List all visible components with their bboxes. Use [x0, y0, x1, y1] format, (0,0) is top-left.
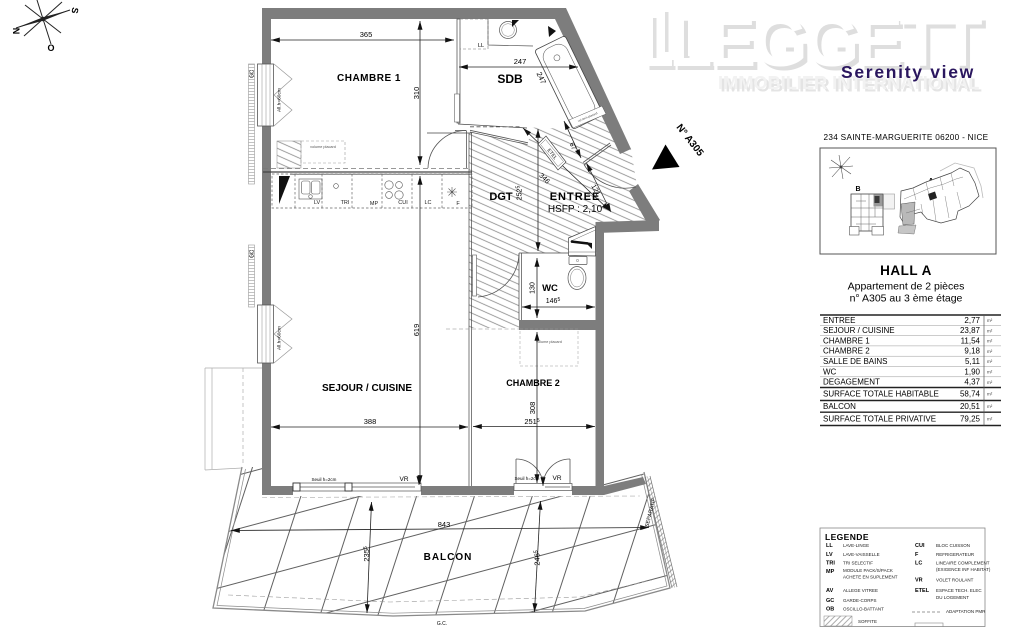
svg-text:ESPACE TECH. ELEC: ESPACE TECH. ELEC	[936, 588, 982, 593]
svg-text:LV: LV	[314, 200, 321, 206]
svg-text:CHAMBRE 2: CHAMBRE 2	[506, 378, 560, 388]
svg-text:MODULE PACK/S/PACK: MODULE PACK/S/PACK	[843, 568, 893, 573]
svg-text:234 SAINTE-MARGUERITE 06200 -: 234 SAINTE-MARGUERITE 06200 - NICE	[824, 133, 989, 142]
svg-text:308: 308	[528, 402, 537, 415]
svg-text:CUI: CUI	[398, 200, 408, 206]
svg-text:11,54: 11,54	[961, 336, 981, 345]
svg-text:LEGENDE: LEGENDE	[825, 532, 869, 542]
svg-text:VR: VR	[915, 578, 923, 584]
svg-text:TRI: TRI	[826, 561, 835, 567]
svg-text:VR: VR	[552, 475, 561, 482]
svg-text:Seuil h=2cm: Seuil h=2cm	[515, 476, 540, 481]
svg-text:TRI SELECTIF: TRI SELECTIF	[843, 561, 873, 566]
svg-text:4,37: 4,37	[964, 378, 980, 387]
svg-text:365: 365	[360, 30, 373, 39]
svg-text:All.h=60cm: All.h=60cm	[277, 88, 283, 112]
svg-text:TRI: TRI	[341, 200, 350, 206]
svg-text:m²: m²	[987, 380, 993, 385]
svg-text:5,11: 5,11	[965, 357, 981, 366]
svg-text:O: O	[47, 43, 54, 53]
svg-text:m²: m²	[987, 349, 993, 354]
svg-text:CHAMBRE 2: CHAMBRE 2	[823, 347, 870, 356]
svg-text:DEGAGEMENT: DEGAGEMENT	[823, 378, 880, 387]
svg-text:VOLET ROULANT: VOLET ROULANT	[936, 578, 974, 583]
svg-text:Seuil h=2cm: Seuil h=2cm	[312, 477, 337, 482]
svg-text:LINEAIRE COMPLEMENT: LINEAIRE COMPLEMENT	[936, 561, 990, 566]
svg-text:ALLEGE VITREE: ALLEGE VITREE	[843, 588, 878, 593]
svg-text:LL: LL	[478, 43, 484, 49]
svg-text:VR: VR	[399, 476, 408, 483]
svg-text:130: 130	[530, 282, 537, 294]
svg-text:SURFACE TOTALE PRIVATIVE: SURFACE TOTALE PRIVATIVE	[823, 415, 936, 424]
svg-text:CHAMBRE 1: CHAMBRE 1	[823, 336, 870, 345]
svg-text:WC: WC	[542, 283, 558, 294]
svg-text:619: 619	[412, 324, 421, 337]
svg-text:m²: m²	[987, 318, 993, 323]
svg-text:ADAPTATION PMR: ADAPTATION PMR	[946, 609, 986, 614]
svg-text:CHAMBRE 1: CHAMBRE 1	[337, 73, 401, 84]
svg-text:volume placard: volume placard	[310, 145, 336, 149]
svg-text:58,74: 58,74	[960, 390, 981, 399]
svg-text:DGT: DGT	[489, 191, 513, 203]
svg-text:LL: LL	[826, 543, 833, 549]
svg-text:CUI: CUI	[915, 543, 925, 549]
svg-text:SALLE DE BAINS: SALLE DE BAINS	[823, 357, 887, 366]
svg-text:LAVE-LINGE: LAVE-LINGE	[843, 543, 869, 548]
svg-text:MP: MP	[826, 569, 835, 575]
svg-text:9,18: 9,18	[964, 347, 980, 356]
svg-text:WC: WC	[823, 367, 837, 376]
svg-text:LAVE-VAISSELLE: LAVE-VAISSELLE	[843, 552, 880, 557]
svg-text:BALCON: BALCON	[424, 552, 473, 563]
svg-text:HALL A: HALL A	[880, 263, 932, 278]
svg-text:All.h=60cm: All.h=60cm	[277, 326, 283, 350]
svg-text:Serenity view: Serenity view	[841, 62, 975, 82]
svg-text:GARDE-CORPS: GARDE-CORPS	[843, 598, 877, 603]
svg-text:79,25: 79,25	[960, 415, 981, 424]
svg-text:ENTREE: ENTREE	[823, 316, 855, 325]
svg-text:m²: m²	[987, 370, 993, 375]
svg-text:HSFP : 2,10: HSFP : 2,10	[548, 204, 603, 215]
svg-text:OB: OB	[826, 607, 834, 613]
svg-text:2,77: 2,77	[964, 316, 980, 325]
svg-text:BALCON: BALCON	[823, 402, 856, 411]
svg-text:AV: AV	[826, 588, 834, 594]
svg-text:MP: MP	[370, 201, 379, 207]
svg-text:OSCILLO-BATTANT: OSCILLO-BATTANT	[843, 607, 884, 612]
svg-text:Appartement de 2 pièces: Appartement de 2 pièces	[848, 281, 965, 293]
svg-text:DU LOGEMENT: DU LOGEMENT	[936, 595, 969, 600]
svg-text:1,90: 1,90	[964, 367, 980, 376]
svg-text:m²: m²	[987, 339, 993, 344]
svg-text:m²: m²	[987, 404, 993, 409]
svg-text:SOFFITE: SOFFITE	[858, 619, 877, 624]
svg-text:m²: m²	[987, 392, 993, 397]
svg-text:ACHETE EN SUPLEMENT: ACHETE EN SUPLEMENT	[843, 575, 898, 580]
svg-text:23,87: 23,87	[960, 326, 981, 335]
svg-text:ENTREE: ENTREE	[550, 191, 601, 203]
svg-text:LV: LV	[826, 552, 833, 558]
svg-text:LC: LC	[915, 561, 922, 567]
svg-text:247: 247	[514, 57, 527, 66]
svg-text:843: 843	[438, 520, 451, 529]
svg-text:m²: m²	[987, 328, 993, 333]
svg-text:n° A305 au 3 ème étage: n° A305 au 3 ème étage	[850, 293, 963, 305]
svg-text:m²: m²	[987, 417, 993, 422]
svg-text:m²: m²	[987, 359, 993, 364]
svg-text:LC: LC	[424, 200, 431, 206]
svg-text:SEJOUR / CUISINE: SEJOUR / CUISINE	[322, 383, 412, 394]
svg-text:310: 310	[412, 87, 421, 100]
svg-text:G.C.: G.C.	[437, 621, 447, 627]
svg-text:20,51: 20,51	[960, 402, 981, 411]
svg-text:GC: GC	[826, 598, 834, 604]
svg-text:388: 388	[364, 417, 377, 426]
svg-text:(EXIGENCE INF HABITAT): (EXIGENCE INF HABITAT)	[936, 567, 991, 572]
svg-text:GC: GC	[250, 250, 256, 258]
svg-text:BLOC CUISSON: BLOC CUISSON	[936, 543, 970, 548]
svg-text:REFRIGERATEUR: REFRIGERATEUR	[936, 552, 975, 557]
svg-text:GC: GC	[250, 70, 256, 78]
svg-text:N: N	[11, 28, 21, 35]
svg-text:B: B	[855, 186, 860, 193]
svg-text:ETEL: ETEL	[915, 588, 930, 594]
svg-text:SEJOUR / CUISINE: SEJOUR / CUISINE	[823, 326, 895, 335]
svg-text:SDB: SDB	[497, 72, 523, 86]
svg-text:SURFACE TOTALE HABITABLE: SURFACE TOTALE HABITABLE	[823, 390, 939, 399]
svg-text:volume placard: volume placard	[536, 340, 562, 344]
